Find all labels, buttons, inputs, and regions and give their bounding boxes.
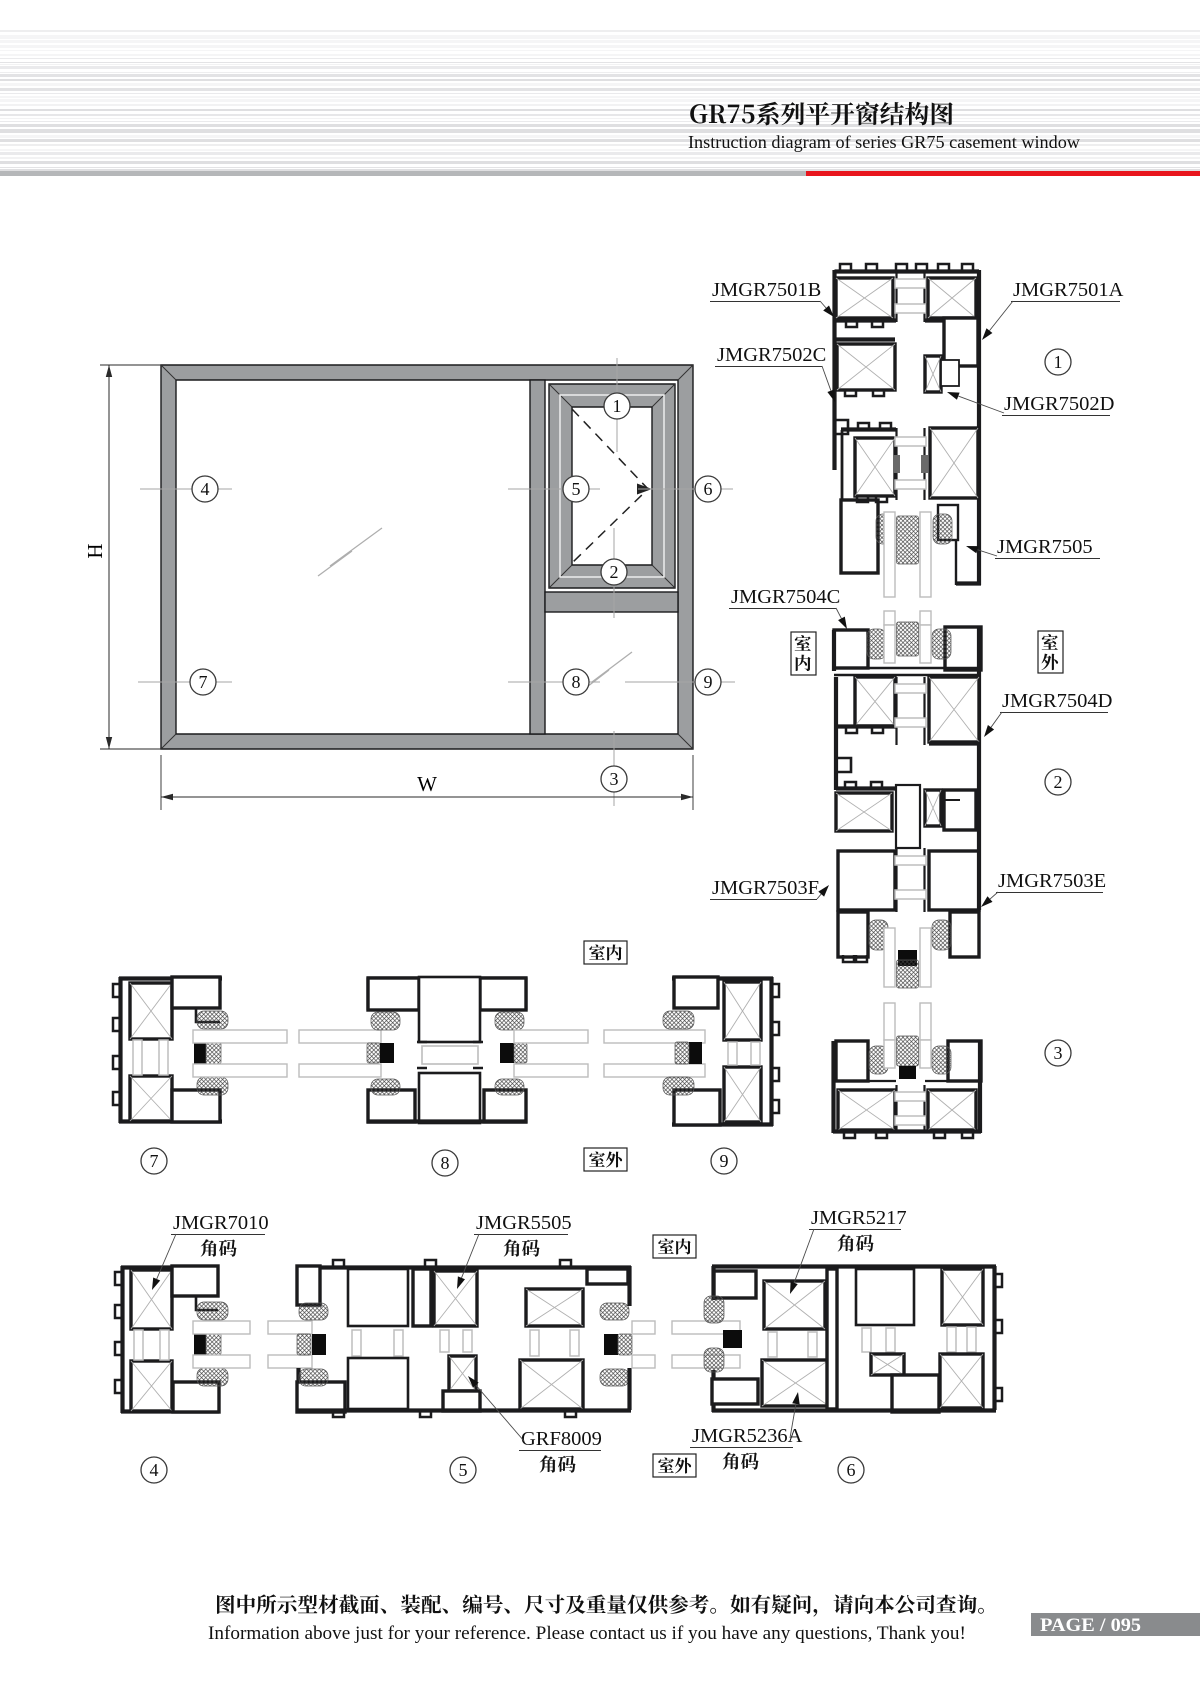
- svg-text:GRF8009: GRF8009: [521, 1428, 602, 1450]
- svg-text:JMGR7504D: JMGR7504D: [1002, 690, 1113, 712]
- svg-text:JMGR7505: JMGR7505: [997, 536, 1093, 558]
- svg-text:JMGR7503F: JMGR7503F: [712, 877, 819, 899]
- svg-text:2: 2: [1054, 772, 1063, 792]
- svg-text:W: W: [417, 772, 437, 796]
- svg-text:7: 7: [150, 1151, 159, 1171]
- svg-text:Information above just for you: Information above just for your referenc…: [208, 1623, 966, 1644]
- svg-text:H: H: [83, 543, 107, 558]
- svg-text:JMGR5236A: JMGR5236A: [692, 1425, 803, 1447]
- svg-text:5: 5: [572, 479, 581, 499]
- svg-text:3: 3: [1054, 1043, 1063, 1063]
- svg-text:4: 4: [201, 479, 210, 499]
- svg-text:3: 3: [610, 769, 619, 789]
- svg-text:JMGR7501A: JMGR7501A: [1013, 279, 1124, 301]
- svg-text:5: 5: [459, 1460, 468, 1480]
- svg-text:4: 4: [150, 1460, 159, 1480]
- svg-text:JMGR5505: JMGR5505: [476, 1212, 572, 1234]
- svg-text:Instruction diagram of series: Instruction diagram of series GR75 casem…: [688, 132, 1081, 152]
- svg-text:6: 6: [847, 1460, 856, 1480]
- svg-text:JMGR7503E: JMGR7503E: [998, 870, 1106, 892]
- svg-text:JMGR7501B: JMGR7501B: [712, 279, 821, 301]
- svg-text:PAGE / 095: PAGE / 095: [1040, 1615, 1141, 1636]
- svg-text:8: 8: [572, 672, 581, 692]
- svg-text:JMGR5217: JMGR5217: [811, 1207, 907, 1229]
- svg-text:9: 9: [704, 672, 713, 692]
- svg-text:9: 9: [720, 1151, 729, 1171]
- svg-text:JMGR7502C: JMGR7502C: [717, 344, 826, 366]
- svg-text:JMGR7504C: JMGR7504C: [731, 586, 840, 608]
- svg-text:7: 7: [199, 672, 208, 692]
- svg-text:1: 1: [1054, 352, 1063, 372]
- svg-text:6: 6: [704, 479, 713, 499]
- svg-text:1: 1: [613, 396, 622, 416]
- svg-text:JMGR7502D: JMGR7502D: [1004, 393, 1115, 415]
- svg-text:2: 2: [610, 562, 619, 582]
- svg-text:8: 8: [441, 1153, 450, 1173]
- svg-text:JMGR7010: JMGR7010: [173, 1212, 269, 1234]
